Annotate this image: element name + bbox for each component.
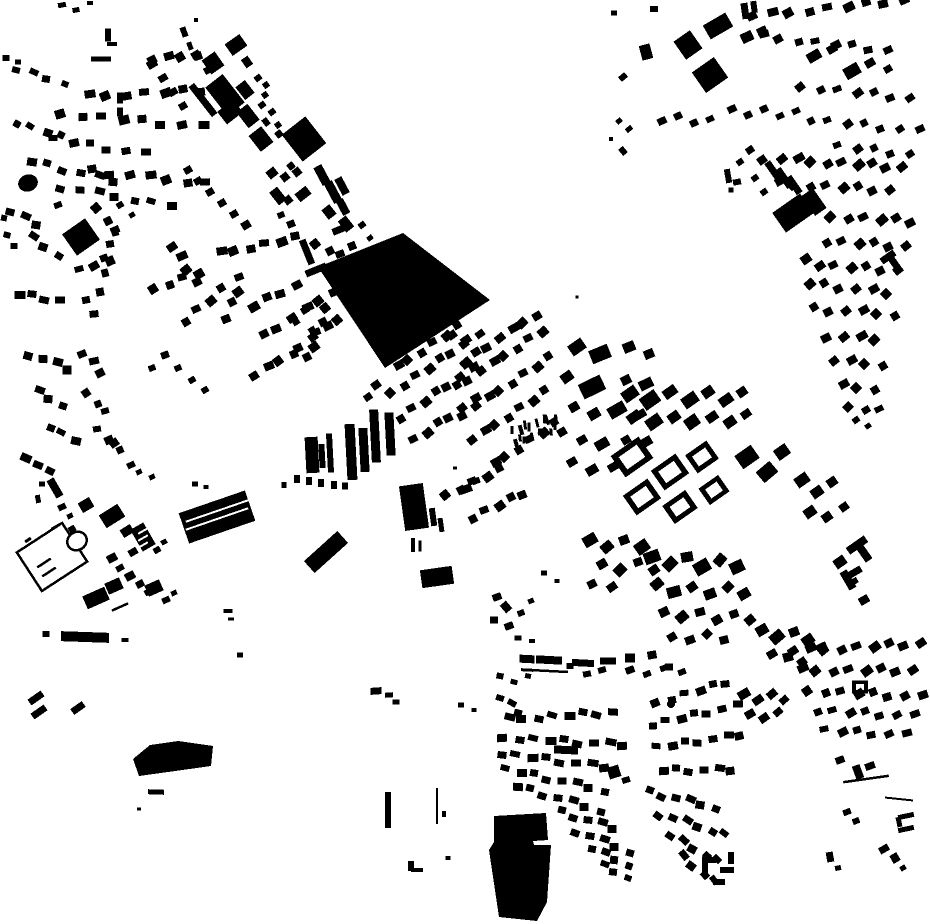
sw-strays <box>27 687 450 872</box>
old-town-blocks <box>611 384 873 668</box>
ne-scatter <box>609 0 926 159</box>
far-se-strays <box>826 755 915 871</box>
figure-ground-map <box>0 0 930 924</box>
ne-wedge-district <box>724 145 916 430</box>
south-suburb-fabric <box>458 664 790 921</box>
se-band <box>787 637 929 739</box>
west-sparse-and-hall <box>17 452 255 657</box>
center-fabric <box>363 296 661 594</box>
center-slab-bars <box>282 409 481 588</box>
city-map <box>0 0 930 924</box>
nw-industrial-band <box>146 18 374 242</box>
center-south-row-strays <box>490 571 673 674</box>
west-village <box>0 201 135 455</box>
